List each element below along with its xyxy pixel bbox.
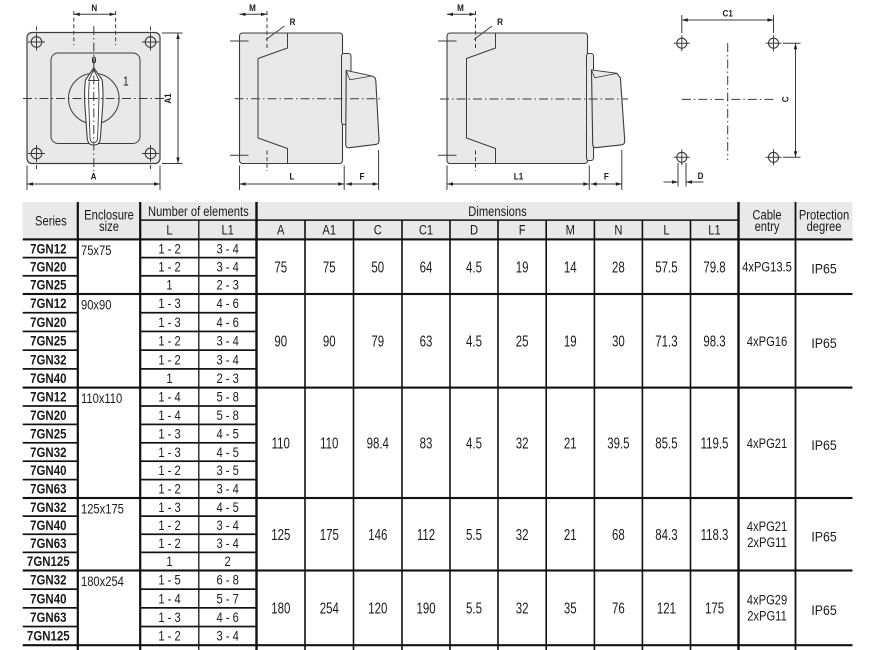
svg-text:1 - 2: 1 - 2: [158, 352, 180, 367]
svg-text:7GN25: 7GN25: [30, 277, 66, 293]
svg-text:75: 75: [323, 259, 336, 276]
svg-text:90: 90: [323, 333, 336, 350]
svg-text:L: L: [290, 171, 295, 182]
svg-text:N: N: [91, 3, 97, 14]
svg-text:4 - 6: 4 - 6: [216, 610, 238, 625]
svg-text:L1: L1: [708, 222, 720, 237]
svg-text:125x175: 125x175: [81, 501, 124, 516]
svg-text:6 - 8: 6 - 8: [216, 572, 238, 587]
svg-text:1: 1: [123, 76, 129, 89]
svg-text:125: 125: [271, 526, 290, 543]
svg-text:4.5: 4.5: [466, 435, 482, 452]
svg-text:39.5: 39.5: [607, 435, 629, 452]
svg-text:7GN12: 7GN12: [30, 388, 66, 404]
svg-text:32: 32: [516, 435, 529, 452]
svg-text:7GN40: 7GN40: [30, 517, 66, 533]
svg-text:1 - 4: 1 - 4: [158, 408, 180, 423]
svg-text:5 - 8: 5 - 8: [216, 389, 238, 404]
svg-text:L: L: [663, 222, 669, 237]
svg-text:R: R: [497, 16, 503, 27]
svg-text:7GN25: 7GN25: [30, 425, 66, 441]
svg-text:1 - 2: 1 - 2: [158, 333, 180, 348]
svg-text:degree: degree: [807, 219, 842, 234]
svg-text:7GN32: 7GN32: [30, 499, 66, 515]
svg-text:1 - 4: 1 - 4: [158, 591, 180, 606]
svg-text:25: 25: [516, 333, 529, 350]
svg-text:98.3: 98.3: [703, 333, 725, 350]
svg-text:5.5: 5.5: [466, 526, 482, 543]
svg-text:7GN12: 7GN12: [30, 240, 66, 256]
svg-text:D: D: [470, 222, 478, 237]
svg-text:180: 180: [271, 600, 290, 617]
svg-text:2xPG11: 2xPG11: [747, 608, 787, 623]
svg-text:75: 75: [274, 259, 287, 276]
svg-text:1 - 2: 1 - 2: [158, 518, 180, 533]
svg-text:7GN63: 7GN63: [30, 535, 66, 551]
svg-text:7GN40: 7GN40: [30, 462, 66, 478]
svg-text:4xPG21: 4xPG21: [747, 519, 787, 534]
svg-text:A: A: [91, 171, 97, 182]
svg-text:7GN32: 7GN32: [30, 351, 66, 367]
svg-text:size: size: [99, 219, 119, 234]
svg-text:1: 1: [166, 371, 172, 386]
svg-text:120: 120: [368, 600, 387, 617]
svg-text:19: 19: [564, 333, 577, 350]
svg-text:A: A: [277, 222, 285, 237]
svg-text:5 - 8: 5 - 8: [216, 408, 238, 423]
svg-text:3 - 4: 3 - 4: [216, 333, 238, 348]
svg-text:C1: C1: [419, 222, 433, 237]
svg-text:C: C: [374, 222, 382, 237]
svg-text:A1: A1: [163, 93, 174, 103]
svg-text:3 - 4: 3 - 4: [216, 481, 238, 496]
svg-text:L1: L1: [514, 171, 524, 182]
svg-text:3 - 4: 3 - 4: [216, 629, 238, 644]
svg-text:32: 32: [516, 600, 529, 617]
svg-text:Number of elements: Number of elements: [148, 204, 249, 219]
svg-text:3 - 4: 3 - 4: [216, 518, 238, 533]
svg-text:175: 175: [705, 600, 724, 617]
svg-text:7GN32: 7GN32: [30, 444, 66, 460]
svg-text:254: 254: [320, 600, 339, 617]
svg-text:7GN32: 7GN32: [30, 572, 66, 588]
svg-text:4.5: 4.5: [466, 333, 482, 350]
svg-text:1 - 2: 1 - 2: [158, 481, 180, 496]
svg-text:7GN63: 7GN63: [30, 480, 66, 496]
svg-text:79.8: 79.8: [703, 259, 725, 276]
svg-text:21: 21: [564, 526, 577, 543]
svg-text:7GN25: 7GN25: [30, 332, 66, 348]
svg-text:146: 146: [368, 526, 387, 543]
svg-text:M: M: [566, 222, 575, 237]
svg-text:Series: Series: [35, 213, 67, 228]
svg-text:190: 190: [416, 600, 435, 617]
svg-text:3 - 4: 3 - 4: [216, 259, 238, 274]
svg-text:N: N: [614, 222, 622, 237]
svg-text:4 - 6: 4 - 6: [216, 296, 238, 311]
svg-text:1 - 3: 1 - 3: [158, 500, 180, 515]
svg-text:7GN12: 7GN12: [30, 295, 66, 311]
svg-text:4xPG21: 4xPG21: [747, 436, 787, 451]
svg-text:7GN20: 7GN20: [30, 258, 66, 274]
svg-text:180x254: 180x254: [81, 574, 124, 589]
svg-text:4 - 6: 4 - 6: [216, 315, 238, 330]
svg-text:50: 50: [371, 259, 384, 276]
svg-text:119.5: 119.5: [701, 435, 729, 452]
svg-text:28: 28: [612, 259, 625, 276]
svg-text:D: D: [698, 170, 704, 181]
svg-text:4 - 5: 4 - 5: [216, 426, 238, 441]
svg-text:79: 79: [371, 333, 384, 350]
svg-text:112: 112: [417, 526, 435, 543]
svg-text:A1: A1: [322, 222, 336, 237]
svg-text:98.4: 98.4: [367, 435, 390, 452]
svg-text:2: 2: [225, 554, 231, 569]
svg-text:1 - 2: 1 - 2: [158, 536, 180, 551]
svg-text:C: C: [780, 96, 791, 102]
svg-text:63: 63: [420, 333, 433, 350]
svg-text:118.3: 118.3: [701, 526, 729, 543]
svg-text:3 - 4: 3 - 4: [216, 536, 238, 551]
svg-text:71.3: 71.3: [655, 333, 677, 350]
svg-text:3 - 4: 3 - 4: [216, 241, 238, 256]
svg-text:IP65: IP65: [811, 437, 836, 453]
svg-text:68: 68: [612, 526, 625, 543]
svg-text:30: 30: [612, 333, 625, 350]
svg-text:5 - 7: 5 - 7: [216, 591, 238, 606]
svg-text:1 - 2: 1 - 2: [158, 241, 180, 256]
svg-text:85.5: 85.5: [655, 435, 677, 452]
svg-text:C1: C1: [723, 8, 733, 19]
svg-text:1 - 4: 1 - 4: [158, 389, 180, 404]
svg-text:2 - 3: 2 - 3: [216, 278, 238, 293]
svg-text:64: 64: [420, 259, 433, 276]
svg-text:F: F: [604, 171, 609, 182]
svg-text:1 - 2: 1 - 2: [158, 629, 180, 644]
svg-text:7GN125: 7GN125: [27, 553, 70, 569]
svg-text:4 - 5: 4 - 5: [216, 445, 238, 460]
svg-text:3 - 4: 3 - 4: [216, 352, 238, 367]
svg-text:1 - 3: 1 - 3: [158, 315, 180, 330]
svg-text:IP65: IP65: [811, 529, 836, 545]
svg-text:entry: entry: [755, 219, 780, 234]
svg-text:L1: L1: [221, 222, 233, 237]
svg-text:IP65: IP65: [811, 335, 836, 351]
svg-text:35: 35: [564, 600, 577, 617]
svg-text:90x90: 90x90: [81, 298, 111, 313]
svg-text:1 - 5: 1 - 5: [158, 572, 180, 587]
svg-text:75x75: 75x75: [81, 243, 111, 258]
svg-text:M: M: [249, 3, 256, 14]
svg-text:76: 76: [612, 600, 625, 617]
svg-text:1 - 3: 1 - 3: [158, 610, 180, 625]
svg-text:L: L: [166, 222, 172, 237]
svg-text:7GN40: 7GN40: [30, 590, 66, 606]
svg-text:IP65: IP65: [811, 261, 836, 277]
svg-text:2 - 3: 2 - 3: [216, 371, 238, 386]
svg-text:1 - 3: 1 - 3: [158, 426, 180, 441]
svg-text:19: 19: [516, 259, 529, 276]
svg-text:32: 32: [516, 526, 529, 543]
svg-text:IP65: IP65: [811, 602, 836, 618]
svg-text:F: F: [519, 222, 526, 237]
svg-text:7GN20: 7GN20: [30, 314, 66, 330]
svg-text:110x110: 110x110: [81, 391, 122, 406]
svg-text:1: 1: [166, 554, 172, 569]
svg-text:21: 21: [564, 435, 577, 452]
svg-text:1 - 3: 1 - 3: [158, 445, 180, 460]
svg-text:1 - 3: 1 - 3: [158, 296, 180, 311]
svg-text:7GN40: 7GN40: [30, 370, 66, 386]
svg-text:2xPG11: 2xPG11: [747, 535, 787, 550]
svg-text:175: 175: [320, 526, 339, 543]
svg-text:4xPG16: 4xPG16: [747, 334, 787, 349]
svg-text:7GN63: 7GN63: [30, 609, 66, 625]
svg-text:110: 110: [272, 435, 291, 452]
svg-text:90: 90: [274, 333, 287, 350]
svg-text:7GN20: 7GN20: [30, 407, 66, 423]
svg-text:1 - 2: 1 - 2: [158, 259, 180, 274]
svg-text:4xPG29: 4xPG29: [747, 592, 787, 607]
svg-text:4.5: 4.5: [466, 259, 482, 276]
svg-text:4xPG13.5: 4xPG13.5: [742, 260, 792, 275]
svg-text:7GN125: 7GN125: [27, 628, 70, 644]
svg-text:4 - 5: 4 - 5: [216, 500, 238, 515]
svg-text:83: 83: [420, 435, 433, 452]
svg-text:14: 14: [564, 259, 577, 276]
svg-text:1 - 2: 1 - 2: [158, 463, 180, 478]
svg-text:57.5: 57.5: [655, 259, 677, 276]
svg-text:121: 121: [657, 600, 676, 617]
svg-text:Dimensions: Dimensions: [468, 204, 526, 219]
svg-text:1: 1: [166, 278, 172, 293]
svg-text:3 - 5: 3 - 5: [216, 463, 238, 478]
svg-text:84.3: 84.3: [655, 526, 677, 543]
svg-text:5.5: 5.5: [466, 600, 482, 617]
svg-text:R: R: [290, 16, 296, 27]
svg-text:M: M: [457, 3, 464, 14]
svg-text:110: 110: [320, 435, 339, 452]
svg-text:F: F: [360, 171, 365, 182]
